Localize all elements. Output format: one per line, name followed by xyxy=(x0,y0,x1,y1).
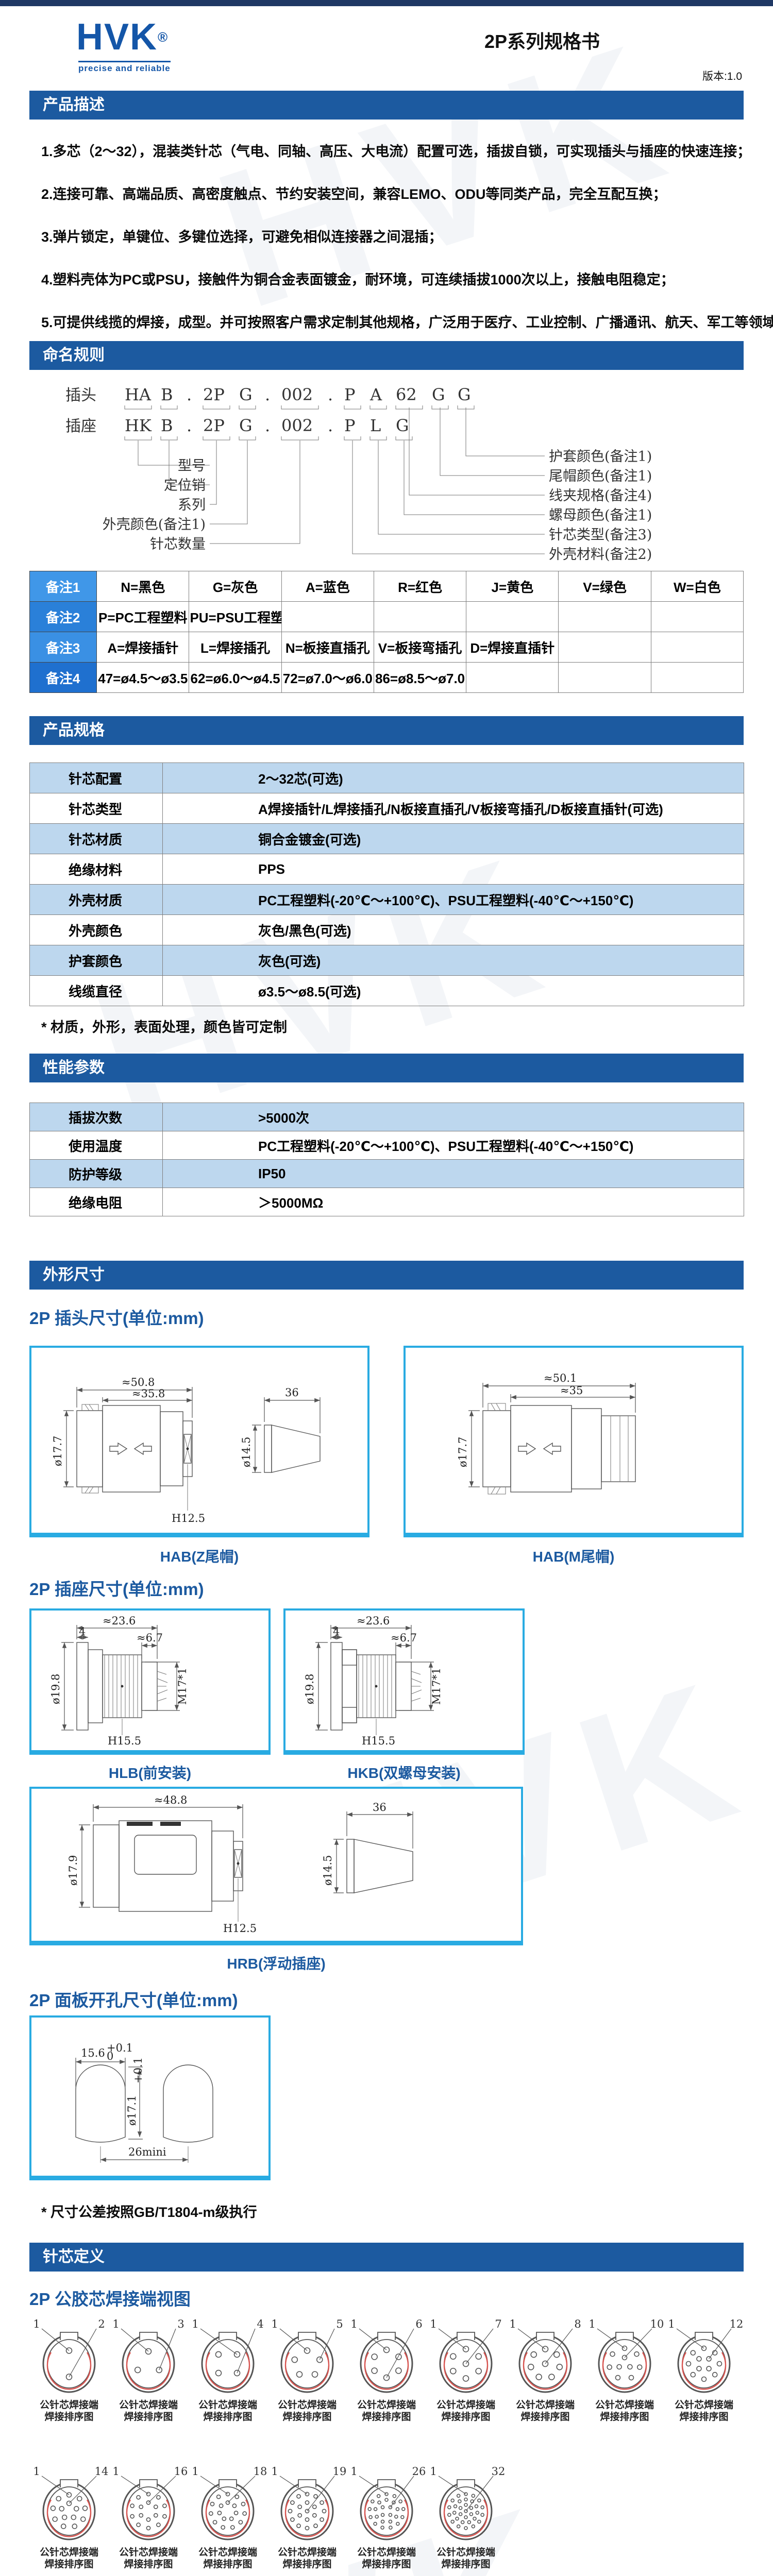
svg-text:.: . xyxy=(328,385,333,404)
svg-text:型号: 型号 xyxy=(178,458,206,474)
svg-text:定位销: 定位销 xyxy=(164,478,206,494)
svg-text:62: 62 xyxy=(396,385,417,404)
svg-text:ø14.5: ø14.5 xyxy=(240,1437,253,1467)
svg-text:ø19.8: ø19.8 xyxy=(304,1674,316,1704)
pin-face-unit: 14公针芯焊接端焊接排序图 xyxy=(188,2318,267,2423)
svg-text:.: . xyxy=(187,416,192,435)
hab-m-caption: HAB(M尾帽) xyxy=(404,1546,744,1566)
version-label: 版本:1.0 xyxy=(702,68,742,83)
hrb-drawing: ≈48.8 36 ø17.9 ø14.5 H12.5 xyxy=(31,1789,521,1941)
svg-text:G: G xyxy=(432,385,445,404)
pin-face-unit: 12公针芯焊接端焊接排序图 xyxy=(29,2318,109,2423)
male-pin-heading: 2P 公胶芯焊接端视图 xyxy=(29,2285,191,2310)
svg-text:ø14.5: ø14.5 xyxy=(322,1855,334,1886)
svg-text:插座: 插座 xyxy=(65,417,96,435)
note-row-label: 备注1 xyxy=(30,571,97,602)
pin-face-caption: 公针芯焊接端焊接排序图 xyxy=(109,2547,188,2570)
svg-text:ø17.7: ø17.7 xyxy=(457,1437,469,1467)
section-banner-dimensions: 外形尺寸 xyxy=(29,1261,744,1290)
svg-text:19: 19 xyxy=(333,2466,347,2478)
hkb-caption: HKB(双螺母安装) xyxy=(283,1762,525,1783)
svg-text:002: 002 xyxy=(281,416,313,435)
pin-face-diagram: 12 xyxy=(29,2318,109,2397)
note-cell xyxy=(651,632,743,663)
pin-face-caption: 公针芯焊接端焊接排序图 xyxy=(347,2399,426,2423)
kv-label: 外壳材质 xyxy=(30,885,163,915)
product-spec-table: 针芯配置2～32芯(可选)针芯类型A焊接插针/L焊接插孔/N板接直插孔/V板接弯… xyxy=(29,762,744,1006)
kv-label: 线缆直径 xyxy=(30,976,163,1006)
section-banner-specs: 产品规格 xyxy=(29,716,744,745)
note-cell xyxy=(281,602,374,632)
note-cell: W=白色 xyxy=(651,571,743,602)
svg-text:1: 1 xyxy=(192,2466,198,2478)
note-cell: 86=ø8.5～ø7.0 xyxy=(374,663,466,693)
svg-text:护套颜色(备注1): 护套颜色(备注1) xyxy=(549,449,652,465)
svg-text:≈23.6: ≈23.6 xyxy=(103,1615,136,1627)
svg-text:M17*1: M17*1 xyxy=(176,1668,189,1705)
section-banner-performance: 性能参数 xyxy=(29,1054,744,1082)
pin-face-unit: 16公针芯焊接端焊接排序图 xyxy=(347,2318,426,2423)
pin-face-caption: 公针芯焊接端焊接排序图 xyxy=(29,2547,109,2570)
svg-text:H15.5: H15.5 xyxy=(108,1735,141,1747)
pin-face-diagram: 132 xyxy=(426,2466,506,2544)
svg-text:≈48.8: ≈48.8 xyxy=(154,1794,187,1806)
svg-text:1: 1 xyxy=(668,2318,675,2330)
pin-face-unit: 114公针芯焊接端焊接排序图 xyxy=(29,2466,109,2570)
pin-face-diagram: 17 xyxy=(426,2318,506,2397)
pin-face-diagram: 116 xyxy=(109,2466,188,2544)
kv-label: 防护等级 xyxy=(30,1160,163,1188)
desc-item: 1.多芯（2～32），混装类针芯（气电、同轴、高压、大电流）配置可选，插拔自锁，… xyxy=(41,140,752,160)
svg-text:≈50.8: ≈50.8 xyxy=(122,1376,155,1388)
kv-value: PPS xyxy=(163,854,744,885)
kv-label: 外壳颜色 xyxy=(30,915,163,945)
naming-notes-table: 备注1N=黑色G=灰色A=蓝色R=红色J=黄色V=绿色W=白色备注2P=PC工程… xyxy=(29,571,744,693)
svg-text:6: 6 xyxy=(415,2318,422,2330)
pin-face-caption: 公针芯焊接端焊接排序图 xyxy=(506,2399,585,2423)
svg-text:0: 0 xyxy=(107,2050,113,2062)
male-pin-row-1: 12公针芯焊接端焊接排序图13公针芯焊接端焊接排序图14公针芯焊接端焊接排序图1… xyxy=(29,2318,744,2423)
hab-z-drawing-box: ≈50.8 ≈35.8 36 ø17.7 ø14.5 H12.5 xyxy=(29,1346,369,1537)
pin-face-diagram: 126 xyxy=(347,2466,426,2544)
hrb-drawing-box: ≈48.8 36 ø17.9 ø14.5 H12.5 xyxy=(29,1787,523,1945)
pin-face-caption: 公针芯焊接端焊接排序图 xyxy=(664,2399,744,2423)
spec-custom-note: * 材质，外形，表面处理，颜色皆可定制 xyxy=(41,1016,287,1036)
svg-text:1: 1 xyxy=(33,2318,40,2330)
note-cell xyxy=(559,632,651,663)
svg-text:18: 18 xyxy=(254,2466,267,2478)
svg-text:10: 10 xyxy=(650,2318,664,2330)
pin-face-caption: 公针芯焊接端焊接排序图 xyxy=(347,2547,426,2570)
svg-text:ø17.9: ø17.9 xyxy=(67,1855,79,1886)
svg-text:H15.5: H15.5 xyxy=(362,1735,395,1747)
plug-dims-heading: 2P 插头尺寸(单位:mm) xyxy=(29,1304,204,1329)
kv-value: IP50 xyxy=(163,1160,744,1188)
svg-text:.: . xyxy=(187,385,192,404)
kv-value: 铜合金镀金(可选) xyxy=(163,824,744,854)
svg-text:≈6.7: ≈6.7 xyxy=(137,1632,163,1644)
svg-text:系列: 系列 xyxy=(178,497,206,513)
svg-text:ø17.7: ø17.7 xyxy=(52,1436,64,1466)
note-cell: V=板接弯插孔 xyxy=(374,632,466,663)
pin-face-diagram: 18 xyxy=(506,2318,585,2397)
svg-text:ø17.1: ø17.1 xyxy=(126,2095,138,2126)
panel-cutout-drawing: 15.6 +0.1 0 ø17.1 +0.1 26mini xyxy=(31,2018,268,2176)
registered-mark-icon: ® xyxy=(158,29,169,45)
svg-text:HK: HK xyxy=(125,416,152,435)
note-cell: V=绿色 xyxy=(559,571,651,602)
svg-text:外壳材料(备注2): 外壳材料(备注2) xyxy=(549,547,652,563)
kv-value: 灰色/黑色(可选) xyxy=(163,915,744,945)
svg-text:G: G xyxy=(239,416,253,435)
svg-text:26mini: 26mini xyxy=(128,2146,166,2158)
svg-text:螺母颜色(备注1): 螺母颜色(备注1) xyxy=(549,507,652,523)
pin-face-diagram: 118 xyxy=(188,2466,267,2544)
svg-text:ø19.8: ø19.8 xyxy=(49,1674,62,1704)
svg-text:B: B xyxy=(161,416,173,435)
note-cell xyxy=(466,602,559,632)
hlb-drawing-box: ≈23.6 4 ≈6.7 ø19.8 M17*1 H15.5 xyxy=(29,1608,271,1755)
svg-text:G: G xyxy=(396,416,409,435)
svg-text:插头: 插头 xyxy=(65,386,96,404)
svg-text:4: 4 xyxy=(333,1625,340,1638)
note-cell: N=板接直插孔 xyxy=(281,632,374,663)
hab-z-caption: HAB(Z尾帽) xyxy=(29,1546,369,1566)
hab-z-drawing: ≈50.8 ≈35.8 36 ø17.7 ø14.5 H12.5 xyxy=(31,1348,367,1533)
svg-text:1: 1 xyxy=(589,2318,595,2330)
tolerance-note: * 尺寸公差按照GB/T1804-m级执行 xyxy=(41,2201,257,2221)
kv-value: A焊接插针/L焊接插孔/N板接直插孔/V板接弯插孔/D板接直插针(可选) xyxy=(163,793,744,824)
kv-value: ø3.5～ø8.5(可选) xyxy=(163,976,744,1006)
svg-text:4: 4 xyxy=(257,2318,263,2330)
svg-text:1: 1 xyxy=(271,2466,278,2478)
desc-item: 3.弹片锁定，单键位、多键位选择，可避免相似连接器之间混插； xyxy=(41,226,752,246)
svg-text:.: . xyxy=(328,416,333,435)
svg-text:1: 1 xyxy=(509,2318,516,2330)
kv-label: 护套颜色 xyxy=(30,945,163,976)
svg-text:16: 16 xyxy=(174,2466,188,2478)
note-row-label: 备注4 xyxy=(30,663,97,693)
pin-face-caption: 公针芯焊接端焊接排序图 xyxy=(585,2399,664,2423)
section-banner-pin-definition: 针芯定义 xyxy=(29,2243,744,2272)
pin-face-unit: 13公针芯焊接端焊接排序图 xyxy=(109,2318,188,2423)
pin-face-unit: 119公针芯焊接端焊接排序图 xyxy=(267,2466,347,2570)
pin-face-unit: 112公针芯焊接端焊接排序图 xyxy=(664,2318,744,2423)
svg-text:2: 2 xyxy=(98,2318,105,2330)
note-cell: 72=ø7.0～ø6.0 xyxy=(281,663,374,693)
pin-face-diagram: 14 xyxy=(188,2318,267,2397)
note-cell xyxy=(559,663,651,693)
pin-face-unit: 132公针芯焊接端焊接排序图 xyxy=(426,2466,506,2570)
panel-cutout-box: 15.6 +0.1 0 ø17.1 +0.1 26mini xyxy=(29,2015,271,2180)
svg-text:HA: HA xyxy=(125,385,152,404)
pin-face-caption: 公针芯焊接端焊接排序图 xyxy=(426,2547,506,2570)
spec-sheet-page: HVK HVK HVK HVK HVK HVK® precise and rel… xyxy=(0,0,773,2576)
svg-text:15.6: 15.6 xyxy=(81,2047,105,2059)
svg-text:≈6.7: ≈6.7 xyxy=(391,1632,417,1644)
hkb-drawing: ≈23.6 4 ≈6.7 ø19.8 M17*1 H15.5 xyxy=(285,1611,523,1750)
kv-value: >5000次 xyxy=(163,1103,744,1131)
svg-text:H12.5: H12.5 xyxy=(172,1512,205,1524)
pin-face-unit: 116公针芯焊接端焊接排序图 xyxy=(109,2466,188,2570)
pin-face-caption: 公针芯焊接端焊接排序图 xyxy=(188,2547,267,2570)
svg-text:P: P xyxy=(344,416,356,435)
male-pin-row-2: 114公针芯焊接端焊接排序图116公针芯焊接端焊接排序图118公针芯焊接端焊接排… xyxy=(29,2466,744,2570)
svg-text:002: 002 xyxy=(281,385,313,404)
hab-m-drawing: ≈50.1 ≈35 ø17.7 xyxy=(406,1348,742,1533)
kv-value: ＞5000MΩ xyxy=(163,1188,744,1216)
svg-text:1: 1 xyxy=(350,2318,357,2330)
svg-text:≈50.1: ≈50.1 xyxy=(544,1372,577,1384)
top-bar xyxy=(0,0,773,6)
svg-text:针芯数量: 针芯数量 xyxy=(150,536,206,552)
pin-face-caption: 公针芯焊接端焊接排序图 xyxy=(188,2399,267,2423)
svg-text:8: 8 xyxy=(574,2318,581,2330)
svg-text:G: G xyxy=(239,385,253,404)
pin-face-unit: 17公针芯焊接端焊接排序图 xyxy=(426,2318,506,2423)
note-cell: J=黄色 xyxy=(466,571,559,602)
panel-cutout-heading: 2P 面板开孔尺寸(单位:mm) xyxy=(29,1987,238,2011)
svg-text:1: 1 xyxy=(112,2466,119,2478)
note-cell: A=焊接插针 xyxy=(97,632,189,663)
logo-tagline: precise and reliable xyxy=(78,61,171,74)
note-row-label: 备注2 xyxy=(30,602,97,632)
kv-label: 插拔次数 xyxy=(30,1103,163,1131)
svg-text:1: 1 xyxy=(112,2318,119,2330)
svg-text:+0.1: +0.1 xyxy=(132,2057,144,2083)
note-cell: P=PC工程塑料 xyxy=(97,602,189,632)
kv-label: 绝缘电阻 xyxy=(30,1188,163,1216)
pin-face-caption: 公针芯焊接端焊接排序图 xyxy=(267,2399,347,2423)
svg-text:14: 14 xyxy=(95,2466,109,2478)
note-cell: R=红色 xyxy=(374,571,466,602)
note-cell: N=黑色 xyxy=(97,571,189,602)
pin-face-diagram: 119 xyxy=(267,2466,347,2544)
note-cell xyxy=(559,602,651,632)
svg-text:1: 1 xyxy=(192,2318,198,2330)
svg-text:1: 1 xyxy=(350,2466,357,2478)
svg-text:26: 26 xyxy=(412,2466,426,2478)
note-cell: 62=ø6.0～ø4.5 xyxy=(189,663,281,693)
svg-text:1: 1 xyxy=(33,2466,40,2478)
pin-face-unit: 15公针芯焊接端焊接排序图 xyxy=(267,2318,347,2423)
pin-face-diagram: 13 xyxy=(109,2318,188,2397)
pin-face-caption: 公针芯焊接端焊接排序图 xyxy=(426,2399,506,2423)
note-cell: 47=ø4.5～ø3.5 xyxy=(97,663,189,693)
kv-value: 2～32芯(可选) xyxy=(163,763,744,793)
svg-text:36: 36 xyxy=(373,1801,386,1814)
svg-text:.: . xyxy=(265,385,270,404)
section-banner-description: 产品描述 xyxy=(29,91,744,120)
pin-face-diagram: 15 xyxy=(267,2318,347,2397)
hvk-logo: HVK® xyxy=(76,19,169,56)
svg-text:M17*1: M17*1 xyxy=(430,1668,443,1705)
note-cell: D=焊接直插针 xyxy=(466,632,559,663)
kv-label: 绝缘材料 xyxy=(30,854,163,885)
kv-label: 针芯类型 xyxy=(30,793,163,824)
desc-item: 2.连接可靠、高端品质、高密度触点、节约安装空间，兼容LEMO、ODU等同类产品… xyxy=(41,183,752,203)
pin-face-unit: 126公针芯焊接端焊接排序图 xyxy=(347,2466,426,2570)
svg-text:1: 1 xyxy=(271,2318,278,2330)
svg-text:外壳颜色(备注1): 外壳颜色(备注1) xyxy=(103,517,206,533)
pin-face-unit: 118公针芯焊接端焊接排序图 xyxy=(188,2466,267,2570)
pin-face-caption: 公针芯焊接端焊接排序图 xyxy=(109,2399,188,2423)
svg-text:12: 12 xyxy=(730,2318,744,2330)
svg-text:P: P xyxy=(344,385,356,404)
note-cell xyxy=(466,663,559,693)
svg-text:L: L xyxy=(370,416,381,435)
svg-text:G: G xyxy=(458,385,471,404)
hab-m-drawing-box: ≈50.1 ≈35 ø17.7 xyxy=(404,1346,744,1537)
performance-table: 插拔次数>5000次使用温度PC工程塑料(-20℃～+100℃)、PSU工程塑料… xyxy=(29,1103,744,1216)
svg-text:.: . xyxy=(265,416,270,435)
svg-text:36: 36 xyxy=(285,1386,299,1399)
pin-face-unit: 110公针芯焊接端焊接排序图 xyxy=(585,2318,664,2423)
note-cell: L=焊接插孔 xyxy=(189,632,281,663)
note-cell: A=蓝色 xyxy=(281,571,374,602)
pin-face-unit: 18公针芯焊接端焊接排序图 xyxy=(506,2318,585,2423)
pin-face-diagram: 110 xyxy=(585,2318,664,2397)
svg-text:≈35.8: ≈35.8 xyxy=(132,1387,165,1400)
hrb-caption: HRB(浮动插座) xyxy=(29,1953,523,1973)
pin-face-diagram: 16 xyxy=(347,2318,426,2397)
svg-text:32: 32 xyxy=(492,2466,506,2478)
hlb-drawing: ≈23.6 4 ≈6.7 ø19.8 M17*1 H15.5 xyxy=(31,1611,268,1750)
svg-text:2P: 2P xyxy=(203,385,225,404)
pin-face-caption: 公针芯焊接端焊接排序图 xyxy=(29,2399,109,2423)
desc-item: 5.可提供线揽的焊接，成型。并可按照客户需求定制其他规格，广泛用于医疗、工业控制… xyxy=(41,311,752,331)
kv-value: PC工程塑料(-20℃～+100℃)、PSU工程塑料(-40℃～+150℃) xyxy=(163,1131,744,1160)
svg-text:7: 7 xyxy=(495,2318,501,2330)
note-row-label: 备注3 xyxy=(30,632,97,663)
pin-face-caption: 公针芯焊接端焊接排序图 xyxy=(267,2547,347,2570)
note-cell xyxy=(651,602,743,632)
socket-dims-heading: 2P 插座尺寸(单位:mm) xyxy=(29,1575,204,1600)
svg-text:≈23.6: ≈23.6 xyxy=(357,1615,390,1627)
note-cell xyxy=(374,602,466,632)
svg-text:≈35: ≈35 xyxy=(560,1384,583,1397)
svg-text:3: 3 xyxy=(177,2318,184,2330)
note-cell: PU=PSU工程塑料 xyxy=(189,602,281,632)
svg-text:H12.5: H12.5 xyxy=(223,1922,257,1935)
svg-text:A: A xyxy=(369,385,382,404)
note-cell: G=灰色 xyxy=(189,571,281,602)
kv-value: 灰色(可选) xyxy=(163,945,744,976)
pin-face-diagram: 112 xyxy=(664,2318,744,2397)
note-cell xyxy=(651,663,743,693)
svg-text:4: 4 xyxy=(79,1625,86,1638)
svg-text:针芯类型(备注3): 针芯类型(备注3) xyxy=(549,527,652,543)
svg-text:尾帽颜色(备注1): 尾帽颜色(备注1) xyxy=(549,468,652,484)
kv-value: PC工程塑料(-20℃～+100℃)、PSU工程塑料(-40℃～+150℃) xyxy=(163,885,744,915)
desc-item: 4.塑料壳体为PC或PSU，接触件为铜合金表面镀金，耐环境，可连续插拔1000次… xyxy=(41,268,752,289)
svg-text:线夹规格(备注4): 线夹规格(备注4) xyxy=(549,488,652,504)
pin-face-diagram: 114 xyxy=(29,2466,109,2544)
product-description-list: 1.多芯（2～32），混装类针芯（气电、同轴、高压、大电流）配置可选，插拔自锁，… xyxy=(41,140,752,354)
svg-text:B: B xyxy=(161,385,173,404)
svg-text:2P: 2P xyxy=(203,416,225,435)
kv-label: 针芯配置 xyxy=(30,763,163,793)
svg-text:1: 1 xyxy=(430,2318,436,2330)
page-title: 2P系列规格书 xyxy=(484,27,701,54)
svg-text:1: 1 xyxy=(430,2466,436,2478)
svg-text:5: 5 xyxy=(336,2318,343,2330)
kv-label: 使用温度 xyxy=(30,1131,163,1160)
naming-rule-diagram: 插头插座HAB.2PG.002.PA62GGHKB.2PG.002.PLG型号定… xyxy=(29,379,744,568)
hlb-caption: HLB(前安装) xyxy=(29,1762,271,1783)
kv-label: 针芯材质 xyxy=(30,824,163,854)
hkb-drawing-box: ≈23.6 4 ≈6.7 ø19.8 M17*1 H15.5 xyxy=(283,1608,525,1755)
